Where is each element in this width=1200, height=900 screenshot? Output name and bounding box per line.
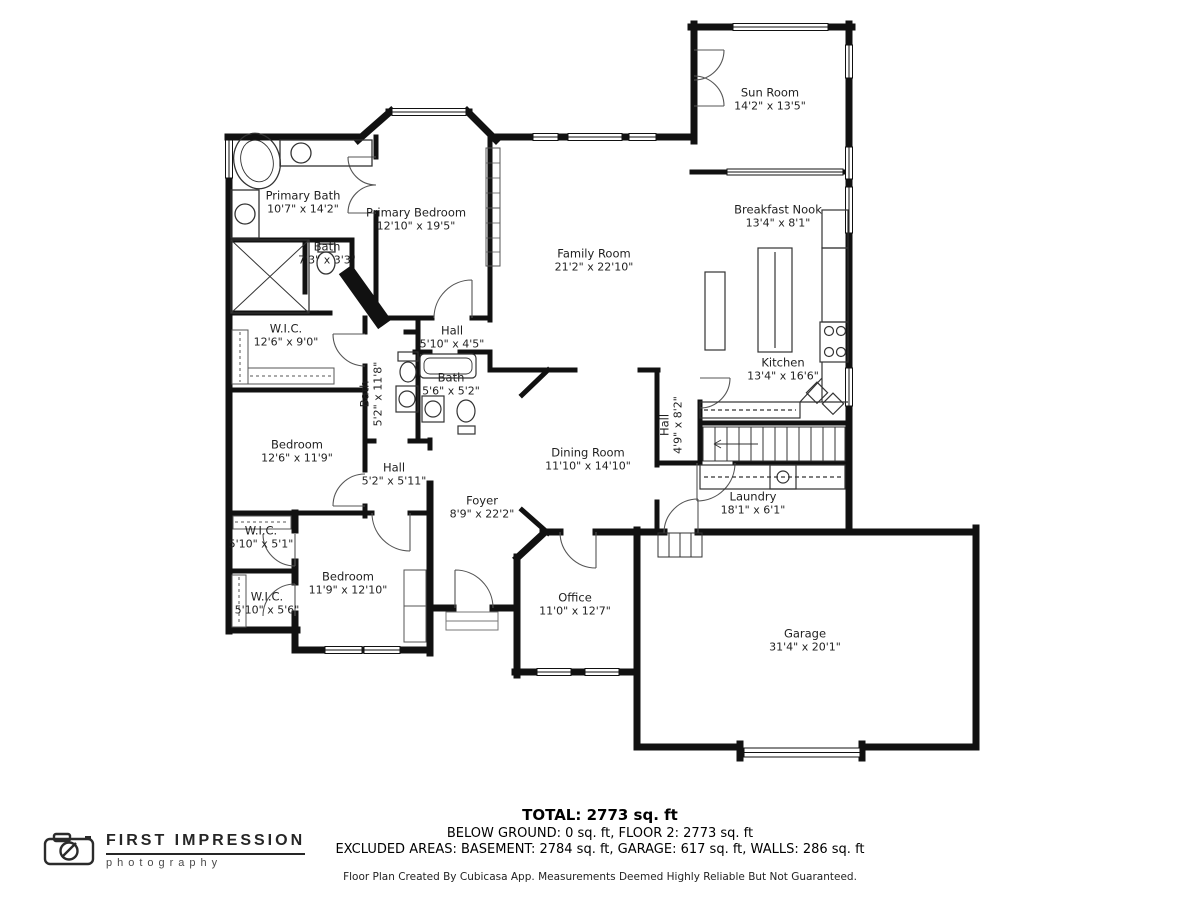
logo-brand-text: FIRST IMPRESSION [106,832,305,855]
porch-steps [446,612,498,630]
logo: FIRST IMPRESSION photography [42,830,305,869]
fridge-icon [822,210,848,248]
hall-bath-fixtures [396,352,476,434]
toilet-icon [318,244,335,252]
sink-icon [291,143,311,163]
sink-icon [399,391,415,407]
sink-icon [425,401,441,417]
total-area-text: TOTAL: 2773 sq. ft [0,806,1200,824]
kitchen-sink-icon [806,382,827,403]
interior-walls [229,137,849,571]
disclaimer-text: Floor Plan Created By Cubicasa App. Meas… [0,871,1200,883]
camera-icon [42,830,98,866]
garage-steps [658,533,702,557]
laundry-fixtures [700,465,845,489]
floor-plan-drawing [0,0,1200,900]
stairs [703,427,845,461]
toilet-icon [458,426,475,434]
floor-plan-page: Sun Room14'2" x 13'5" Breakfast Nook13'4… [0,0,1200,900]
kitchen-fixtures [700,210,848,418]
sink-icon [235,204,255,224]
logo-sub-text: photography [106,857,305,869]
